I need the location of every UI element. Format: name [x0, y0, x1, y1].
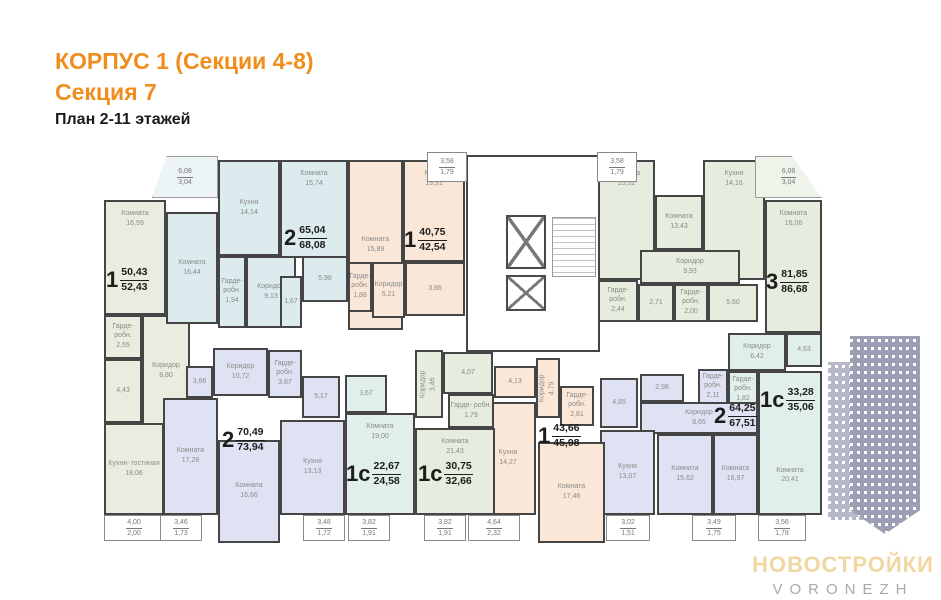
room-label: Комната16,59 [121, 202, 148, 229]
area-fraction: 22,6724,58 [372, 460, 400, 488]
room-label: 4,63 [797, 345, 811, 355]
balcony: 4,002,00 [104, 515, 164, 541]
room-label: Комната15,62 [671, 465, 698, 484]
room-area: 1,79 [451, 412, 492, 421]
room-label: Комната16,44 [178, 259, 205, 278]
area-fraction: 3,581,79 [439, 157, 455, 176]
area-fraction: 33,2835,06 [786, 386, 814, 414]
area-total: 3,49 [706, 518, 722, 528]
room-name: Комната [300, 170, 327, 179]
room-label: Комната21,43 [441, 430, 468, 457]
area-reduced: 3,04 [782, 178, 796, 187]
room-label: Коридор9,93 [676, 258, 704, 277]
area-total: 4,64 [486, 518, 502, 528]
room-area: 4,13 [508, 378, 522, 387]
balcony: 3,581,79 [597, 152, 637, 182]
room: 4,43 [104, 359, 142, 423]
elevator-icon [506, 215, 546, 269]
room-area: 4,79 [549, 374, 558, 402]
room-area: 4,07 [461, 369, 475, 378]
room: Кухня13,13 [280, 420, 345, 515]
area-total: 4,00 [126, 518, 142, 528]
room-label: Комната16,97 [722, 465, 749, 484]
area-reduced: 45,98 [553, 437, 579, 451]
area-fraction: 3,561,78 [774, 518, 790, 537]
room-name: Комната [722, 465, 749, 474]
room-label: 3,67 [359, 389, 373, 399]
room-label: Гарде- робн.2,00 [676, 289, 706, 316]
room: Комната16,44 [166, 212, 218, 324]
floor-plan: Комната16,59Гарде- робн.2,554,43Коридор8… [0, 0, 941, 600]
area-fraction: 50,4352,43 [120, 266, 148, 294]
room-area: 4,63 [797, 346, 811, 355]
room-area: 18,06 [108, 470, 159, 479]
room-name: Кухня- гостиная [108, 460, 159, 469]
area-reduced: 1,79 [440, 168, 454, 177]
room-label: Кухня14,16 [725, 162, 744, 189]
room: Комната17,28 [163, 398, 218, 515]
room: Комната16,59 [104, 200, 166, 315]
room-name: Коридор [685, 409, 713, 418]
room-label: Гарде- робн.1,82 [730, 376, 756, 403]
room-name: Коридор [375, 281, 403, 290]
room-name: Комната [177, 447, 204, 456]
room: Гарде- робн.2,44 [598, 280, 638, 322]
room-area: 16,44 [178, 269, 205, 278]
room-area: 6,42 [743, 353, 771, 362]
area-reduced: 67,51 [729, 417, 755, 431]
room-name: Комната [121, 210, 148, 219]
room-label: 3,86 [428, 284, 442, 294]
elevator-icon [506, 275, 546, 311]
room-label: Гарде- робн.1,79 [451, 402, 492, 421]
room-label: 5,17 [314, 392, 328, 402]
area-reduced: 1,78 [775, 529, 789, 538]
room-label: Комната13,43 [665, 213, 692, 232]
apartment-rooms-count: 2 [222, 429, 234, 451]
room: Коридор4,79 [536, 358, 560, 418]
room-area: 3,67 [359, 390, 373, 399]
area-total: 3,82 [437, 518, 453, 528]
room: Комната16,97 [713, 434, 758, 515]
room: Комната17,46 [538, 442, 605, 543]
apartment-rooms-count: 1с [346, 463, 370, 485]
room-area: 8,65 [685, 419, 713, 428]
area-reduced: 3,04 [178, 178, 192, 187]
area-reduced: 73,94 [237, 441, 263, 455]
room-name: Кухня [240, 199, 259, 208]
area-total: 30,75 [444, 460, 472, 475]
apartment-rooms-count: 1с [760, 389, 784, 411]
room-area: 14,16 [725, 180, 744, 189]
area-total: 3,58 [609, 157, 625, 167]
room: 3,67 [345, 375, 387, 413]
room-area: 14,14 [240, 209, 259, 218]
room-area: 20,41 [776, 476, 803, 485]
room-area: 1,88 [349, 292, 370, 301]
room-area: 17,28 [177, 457, 204, 466]
room: Коридор5,21 [372, 262, 405, 318]
area-fraction: 65,0468,08 [298, 224, 326, 252]
room-label: 3,66 [193, 377, 207, 387]
room-name: Комната [776, 467, 803, 476]
room-name: Кухня [499, 449, 518, 458]
area-fraction: 6,083,04 [177, 167, 193, 186]
apartment-label: 381,8586,68 [766, 268, 809, 296]
room-area: 13,43 [665, 223, 692, 232]
apartment-rooms-count: 1 [538, 425, 550, 447]
room-area: 13,07 [618, 473, 637, 482]
room-name: Коридор [420, 370, 429, 398]
room-area: 16,06 [780, 220, 807, 229]
room-name: Коридор [227, 363, 255, 372]
stairs-icon [552, 217, 596, 277]
area-reduced: 1,75 [707, 529, 721, 538]
area-reduced: 32,66 [445, 475, 471, 489]
room-area: 19,00 [366, 433, 393, 442]
room-label: Коридор3,46 [420, 370, 439, 398]
room-name: Гарде- робн. [349, 273, 370, 291]
logo-city: VORONEZH [748, 581, 938, 598]
room-name: Комната [665, 213, 692, 222]
room-label: Комната16,06 [780, 202, 807, 229]
balcony: 3,821,91 [348, 515, 390, 541]
room-area: 3,87 [270, 379, 300, 388]
area-fraction: 40,7542,54 [418, 226, 446, 254]
area-reduced: 42,54 [419, 241, 445, 255]
balcony: 6,083,04 [152, 156, 218, 198]
area-reduced: 1,91 [438, 529, 452, 538]
area-total: 81,85 [780, 268, 808, 283]
room-label: Гарде- робн.2,55 [106, 323, 140, 350]
room: Кухня14,14 [218, 160, 280, 256]
room-name: Гарде- робн. [676, 289, 706, 307]
area-fraction: 43,6645,98 [552, 422, 580, 450]
area-fraction: 3,021,51 [620, 518, 636, 537]
room-area: 3,66 [193, 378, 207, 387]
area-total: 64,25 [728, 402, 756, 417]
room-area: 9,93 [676, 268, 704, 277]
area-reduced: 35,06 [787, 401, 813, 415]
room-area: 21,43 [441, 448, 468, 457]
room-area: 1,67 [284, 298, 298, 307]
area-reduced: 86,68 [781, 283, 807, 297]
area-total: 65,04 [298, 224, 326, 239]
room: Гарде- робн.2,81 [560, 386, 594, 426]
area-total: 33,28 [786, 386, 814, 401]
room-name: Гарде- робн. [700, 373, 726, 391]
room: Гарде- робн.2,11 [698, 369, 728, 405]
area-fraction: 3,481,72 [316, 518, 332, 537]
room: 3,66 [186, 366, 213, 398]
room-label: Кухня13,07 [618, 463, 637, 482]
room-name: Коридор [539, 374, 548, 402]
room-area: 8,80 [152, 372, 180, 381]
room-area: 3,46 [430, 370, 439, 398]
room-label: Комната17,28 [177, 447, 204, 466]
balcony: 3,491,75 [692, 515, 736, 541]
area-total: 3,46 [173, 518, 189, 528]
area-total: 50,43 [120, 266, 148, 281]
room-area: 5,60 [726, 299, 740, 308]
area-total: 3,82 [361, 518, 377, 528]
room-label: Гарде- робн.2,81 [562, 392, 592, 419]
area-reduced: 2,00 [127, 529, 141, 538]
room-name: Гарде- робн. [562, 392, 592, 410]
room-name: Кухня [725, 170, 744, 179]
balcony: 3,821,91 [424, 515, 466, 541]
room: Коридор6,42 [728, 333, 786, 371]
room: 2,71 [638, 284, 674, 322]
room-name: Гарде- робн. [730, 376, 756, 394]
apartment-rooms-count: 1с [418, 463, 442, 485]
room-name: Гарде- робн. [220, 278, 244, 296]
room-area: 16,97 [722, 475, 749, 484]
apartment-rooms-count: 2 [714, 405, 726, 427]
room-name: Комната [178, 259, 205, 268]
room: 5,17 [302, 376, 340, 418]
room-area: 15,62 [671, 475, 698, 484]
room-area: 3,86 [428, 285, 442, 294]
room-area: 17,46 [558, 493, 585, 502]
room-label: Кухня14,27 [499, 449, 518, 468]
room-name: Гарде- робн. [451, 402, 492, 411]
room-name: Гарде- робн. [600, 287, 636, 305]
area-total: 43,66 [552, 422, 580, 437]
room-label: Коридор8,65 [685, 409, 713, 428]
area-total: 3,56 [774, 518, 790, 528]
area-total: 3,02 [620, 518, 636, 528]
room-area: 2,55 [106, 342, 140, 351]
area-fraction: 3,461,73 [173, 518, 189, 537]
area-fraction: 4,642,32 [486, 518, 502, 537]
room-label: 2,98 [655, 383, 669, 393]
room: Гарде- робн.2,55 [104, 315, 142, 359]
room: 4,85 [600, 378, 638, 428]
apartment-label: 1с22,6724,58 [346, 460, 401, 488]
room-label: Комната16,66 [235, 482, 262, 501]
area-total: 40,75 [418, 226, 446, 241]
room-label: Кухня14,14 [240, 199, 259, 218]
room-label: Коридор5,21 [375, 281, 403, 300]
area-total: 3,48 [316, 518, 332, 528]
area-reduced: 1,73 [174, 529, 188, 538]
logo-brand: НОВОСТРОЙКИ [748, 552, 938, 578]
balcony: 3,481,72 [303, 515, 345, 541]
room: Коридор3,46 [415, 350, 443, 418]
room: Коридор10,72 [213, 348, 268, 396]
apartment-label: 265,0468,08 [284, 224, 327, 252]
room-label: 4,43 [116, 386, 130, 396]
room: Комната16,06 [765, 200, 822, 333]
room-name: Комната [366, 423, 393, 432]
balcony: 6,083,04 [755, 156, 822, 198]
room: Гарде- робн.1,88 [348, 262, 372, 312]
area-reduced: 1,51 [621, 529, 635, 538]
room-area: 5,17 [314, 393, 328, 402]
area-fraction: 3,821,91 [437, 518, 453, 537]
room-label: Гарде- робн.1,88 [349, 273, 370, 300]
apartment-rooms-count: 1 [404, 229, 416, 251]
room: 4,07 [443, 352, 493, 394]
stair-elevator-core [466, 155, 600, 352]
room-name: Комната [441, 438, 468, 447]
room-label: Комната19,00 [366, 415, 393, 442]
room-name: Комната [235, 482, 262, 491]
area-fraction: 3,821,91 [361, 518, 377, 537]
room-area: 14,27 [499, 459, 518, 468]
room-label: Коридор8,80 [152, 362, 180, 381]
room-label: Кухня- гостиная18,06 [108, 460, 159, 479]
apartment-label: 270,4973,94 [222, 426, 265, 454]
balcony: 3,461,73 [160, 515, 202, 541]
room-area: 5,21 [375, 291, 403, 300]
room-area: 5,98 [318, 275, 332, 284]
balcony: 3,561,78 [758, 515, 806, 541]
room-area: 2,81 [562, 411, 592, 420]
room-label: Коридор10,72 [227, 363, 255, 382]
room-area: 2,00 [676, 308, 706, 317]
room-name: Коридор [676, 258, 704, 267]
room-area: 10,72 [227, 373, 255, 382]
area-total: 3,58 [439, 157, 455, 167]
room-area: 16,66 [235, 492, 262, 501]
room-area: 2,71 [649, 299, 663, 308]
area-total: 22,67 [372, 460, 400, 475]
room-label: 4,07 [461, 368, 475, 378]
room: 5,98 [302, 256, 348, 302]
room-label: Гарде- робн.1,94 [220, 278, 244, 305]
area-fraction: 30,7532,66 [444, 460, 472, 488]
room-area: 13,13 [303, 468, 322, 477]
room-name: Комната [362, 236, 389, 245]
room-name: Гарде- робн. [270, 360, 300, 378]
room-area: 2,11 [700, 392, 726, 401]
apartment-rooms-count: 3 [766, 271, 778, 293]
area-reduced: 2,32 [487, 529, 501, 538]
area-reduced: 68,08 [299, 239, 325, 253]
room-area: 15,74 [300, 180, 327, 189]
balcony: 3,581,79 [427, 152, 467, 182]
room-label: Коридор6,42 [743, 343, 771, 362]
area-fraction: 70,4973,94 [236, 426, 264, 454]
room: 4,13 [494, 366, 536, 398]
room-name: Кухня [303, 458, 322, 467]
apartment-label: 140,7542,54 [404, 226, 447, 254]
room-name: Кухня [618, 463, 637, 472]
room: Комната16,66 [218, 440, 280, 543]
apartment-rooms-count: 1 [106, 269, 118, 291]
apartment-label: 143,6645,98 [538, 422, 581, 450]
area-fraction: 81,8586,68 [780, 268, 808, 296]
room-label: 2,71 [649, 298, 663, 308]
area-fraction: 6,083,04 [781, 167, 797, 186]
apartment-label: 1с30,7532,66 [418, 460, 473, 488]
room: Комната13,43 [655, 195, 703, 250]
room: 3,86 [405, 262, 465, 316]
apartment-rooms-count: 2 [284, 227, 296, 249]
area-fraction: 4,002,00 [126, 518, 142, 537]
area-total: 70,49 [236, 426, 264, 441]
room-area: 15,89 [362, 246, 389, 255]
room: 5,60 [708, 284, 758, 322]
room-label: Комната15,89 [362, 236, 389, 255]
room-name: Комната [671, 465, 698, 474]
room-area: 1,94 [220, 297, 244, 306]
room-label: 5,98 [318, 274, 332, 284]
area-fraction: 3,581,79 [609, 157, 625, 176]
room-label: Гарде- робн.2,44 [600, 287, 636, 314]
room-label: Гарде- робн.3,87 [270, 360, 300, 387]
area-reduced: 52,43 [121, 281, 147, 295]
room-area: 4,43 [116, 387, 130, 396]
room: Гарде- робн.2,00 [674, 284, 708, 322]
room: Гарде- робн.1,94 [218, 256, 246, 328]
page: КОРПУС 1 (Секции 4-8) Секция 7 План 2-11… [0, 0, 941, 600]
area-reduced: 1,91 [362, 529, 376, 538]
room-area: 16,59 [121, 220, 148, 229]
room: 4,63 [786, 333, 822, 367]
area-fraction: 64,2567,51 [728, 402, 756, 430]
room: 1,67 [280, 276, 302, 328]
room-label: Комната15,74 [300, 162, 327, 189]
room-label: Комната17,46 [558, 483, 585, 502]
room: Гарде- робн.3,87 [268, 350, 302, 398]
area-total: 6,08 [177, 167, 193, 177]
room-area: 2,44 [600, 306, 636, 315]
room-name: Гарде- робн. [106, 323, 140, 341]
watermark-tower-main-icon [850, 336, 920, 534]
room-label: 4,85 [612, 398, 626, 408]
room: Комната15,62 [657, 434, 713, 515]
area-fraction: 3,491,75 [706, 518, 722, 537]
room-label: Комната20,41 [776, 467, 803, 514]
area-reduced: 1,72 [317, 529, 331, 538]
area-total: 6,08 [781, 167, 797, 177]
room-label: Коридор4,79 [539, 374, 558, 402]
room-label: 5,60 [726, 298, 740, 308]
room-area: 2,98 [655, 384, 669, 393]
room-name: Комната [780, 210, 807, 219]
logo: НОВОСТРОЙКИ VORONEZH [748, 552, 938, 598]
area-reduced: 24,58 [373, 475, 399, 489]
room: Гарде- робн.1,79 [448, 394, 494, 428]
apartment-label: 264,2567,51 [714, 402, 757, 430]
room-area: 4,85 [612, 399, 626, 408]
apartment-label: 150,4352,43 [106, 266, 149, 294]
area-reduced: 1,79 [610, 168, 624, 177]
room-label: Гарде- робн.2,11 [700, 373, 726, 400]
room: 2,98 [640, 374, 684, 402]
room-label: 4,13 [508, 377, 522, 387]
building-watermark [828, 328, 934, 542]
balcony: 3,021,51 [606, 515, 650, 541]
room-name: Коридор [743, 343, 771, 352]
room-name: Комната [558, 483, 585, 492]
room: Кухня13,07 [600, 430, 655, 515]
balcony: 4,642,32 [468, 515, 520, 541]
room-label: 1,67 [284, 297, 298, 307]
room-label: Кухня13,13 [303, 458, 322, 477]
room: Кухня- гостиная18,06 [104, 423, 164, 515]
room: Коридор9,93 [640, 250, 740, 284]
apartment-label: 1с33,2835,06 [760, 386, 815, 414]
room-name: Коридор [152, 362, 180, 371]
